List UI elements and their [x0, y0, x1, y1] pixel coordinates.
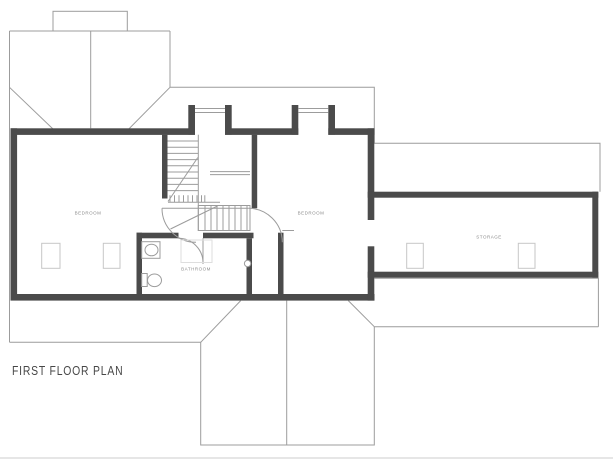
- roof-eave-top-run: [170, 87, 600, 191]
- floor-plan-linework: [0, 0, 613, 461]
- wall-hall-bedroom2: [252, 135, 258, 209]
- wall-top-c: [328, 128, 374, 135]
- wall-storage-right: [592, 192, 598, 278]
- roof-hip-right: [128, 87, 170, 129]
- shower-tray: [181, 240, 212, 263]
- bathroom-door-arc: [179, 238, 204, 262]
- stair-lower-treads: [205, 206, 247, 231]
- skylight-storage-left: [407, 243, 424, 268]
- roof-diag-bottom-right: [348, 301, 374, 327]
- wall-bathroom-top-b: [203, 233, 254, 239]
- room-label-bedroom-2: BEDROOM: [298, 210, 325, 215]
- bathroom-fixtures: [142, 240, 212, 287]
- sink-basin: [145, 244, 158, 256]
- wall-storage-bottom: [368, 272, 599, 278]
- skylight-bedroom1-right: [103, 243, 120, 268]
- stair-mid-treads: [170, 195, 202, 202]
- roof-outline: [10, 11, 601, 445]
- chimney: [53, 11, 127, 31]
- wall-bedroom1-hall: [162, 135, 168, 199]
- wall-storage-top: [368, 192, 599, 198]
- floor-plan-drawing: BEDROOM BEDROOM BATHROOM STORAGE FIRST F…: [0, 0, 613, 461]
- stair-upper-treads: [168, 141, 199, 191]
- roof-lower-gable-outline: [10, 327, 375, 445]
- wall-right-upper: [368, 128, 375, 220]
- door-knob-symbol: [244, 260, 250, 266]
- page-bottom-edge: [0, 457, 613, 459]
- staircase: [168, 135, 251, 231]
- dormer2-post-right: [328, 105, 335, 135]
- roof-diag-bottom-left: [201, 301, 241, 343]
- stair-lower-outline: [198, 206, 250, 231]
- skylight-storage-right: [518, 243, 535, 268]
- stair-break-line-2: [171, 206, 218, 229]
- toilet-cistern: [142, 274, 148, 287]
- plan-title: FIRST FLOOR PLAN: [12, 363, 123, 378]
- skylights: [42, 243, 535, 268]
- wall-top-a: [11, 128, 196, 135]
- dormer1-post-right: [225, 105, 232, 135]
- dormer2-glazing: [298, 109, 328, 113]
- roof-eave-storage-bottom: [374, 278, 598, 327]
- dormer2-post-left: [292, 105, 299, 135]
- skylight-bedroom1-left: [42, 243, 60, 268]
- roof-hip-left: [10, 87, 54, 129]
- stair-mid-edge: [168, 195, 220, 202]
- room-label-storage: STORAGE: [476, 234, 501, 239]
- wall-left: [11, 128, 18, 300]
- stair-break-line-1: [168, 158, 198, 202]
- stair-rail: [210, 172, 250, 175]
- room-label-bathroom: BATHROOM: [181, 266, 211, 271]
- toilet-bowl: [148, 274, 162, 287]
- dormer1-post-left: [188, 105, 195, 135]
- dormer1-glazing: [195, 109, 225, 113]
- wall-bottom: [11, 294, 375, 301]
- wall-top-b: [225, 128, 298, 135]
- wall-bathroom-top-a: [137, 233, 179, 239]
- wall-bathroom-left: [137, 233, 143, 294]
- room-label-bedroom-1: BEDROOM: [75, 210, 102, 215]
